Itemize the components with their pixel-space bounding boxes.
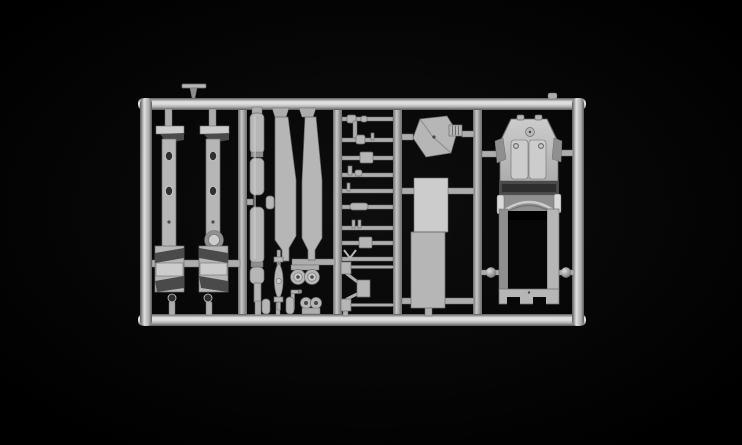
- small-wheel-hub: [314, 301, 318, 305]
- segment-3: [250, 207, 264, 263]
- gate-plate-bottom-left: [402, 298, 412, 304]
- ball-right: [561, 267, 571, 277]
- gate-plate-top-right: [446, 188, 474, 194]
- mudguard-end: [199, 246, 228, 292]
- spring-cap-top: [274, 257, 283, 262]
- cylinder-highlight: [254, 116, 257, 259]
- rivet-hole: [211, 220, 214, 223]
- rail-top: [138, 98, 586, 110]
- mudguard-face: [156, 263, 183, 276]
- gate-bottom-1: [169, 302, 175, 315]
- bottom-rivet: [528, 291, 530, 293]
- floor-plate-lower: [411, 232, 445, 308]
- runner-3: [393, 106, 402, 318]
- wheel-hub: [296, 275, 300, 279]
- lightening-hole: [209, 186, 216, 195]
- rivet-hole: [167, 220, 170, 223]
- side-knob-1: [266, 196, 274, 209]
- runner-1: [238, 106, 247, 318]
- compartment-wall-left: [499, 209, 508, 291]
- gate-hex-left: [402, 134, 413, 140]
- gate-cylinder-tie: [247, 199, 253, 205]
- winglet-right: [552, 138, 562, 162]
- top-knob: [517, 115, 524, 120]
- opening-top-shadow: [508, 211, 547, 220]
- hood-cap-dot: [529, 131, 531, 133]
- joint-2: [251, 262, 263, 267]
- frame-block-right: [357, 280, 370, 297]
- gate-plate-bottom-right: [444, 298, 474, 304]
- mudguard-end: [155, 246, 184, 292]
- floor-plate-upper: [414, 178, 448, 232]
- head-top-face: [200, 126, 229, 134]
- runner-4: [473, 106, 482, 318]
- frame-block-bottom: [341, 299, 351, 311]
- wheel-hub: [310, 275, 314, 279]
- wheel-pair-small: [300, 297, 321, 314]
- segment-1: [250, 113, 264, 154]
- segment-2: [250, 158, 264, 195]
- gate-plate-top-left: [402, 188, 415, 194]
- gate-top-left-1: [165, 109, 172, 127]
- gate-body-upper-left: [482, 151, 497, 157]
- visor-slit: [502, 184, 556, 192]
- photo-stage: Photograph of a light-gray injection-mol…: [0, 0, 742, 445]
- axle-bar: [291, 265, 319, 270]
- cylinder-bottom-gate: [255, 301, 261, 315]
- lever-ball: [298, 290, 302, 294]
- lightening-hole: [165, 151, 172, 160]
- leaf-spring: [274, 250, 283, 310]
- joint-1: [251, 152, 263, 157]
- end-ring: [204, 294, 212, 302]
- gate-blade-left: [272, 108, 289, 117]
- canister: [262, 299, 270, 314]
- hexagon-center-hole: [432, 135, 435, 138]
- bottom-notch: [533, 297, 546, 305]
- runner-2: [333, 106, 342, 318]
- small-wheel-hub: [304, 301, 308, 305]
- gate-top-left-2: [209, 109, 216, 127]
- canister: [286, 297, 294, 314]
- ribbed-block: [449, 125, 462, 136]
- hull-body: [495, 115, 562, 305]
- gate-hex-right: [462, 131, 474, 137]
- rail-left: [140, 98, 152, 326]
- bottom-notch: [507, 297, 520, 305]
- rail-nub: [548, 93, 557, 99]
- ball-left: [486, 267, 496, 277]
- small-wheel-base: [302, 308, 320, 314]
- t-part-bar: [182, 84, 206, 88]
- sprue-photo: Photograph of a light-gray injection-mol…: [0, 0, 742, 445]
- gate-bottom-2: [206, 302, 212, 315]
- segment-4: [250, 267, 264, 284]
- spring-center-band: [276, 278, 281, 283]
- lightening-hole: [165, 186, 172, 195]
- compartment-wall-right: [547, 209, 559, 291]
- vignette: [0, 0, 742, 445]
- rail-bottom: [138, 314, 586, 326]
- frame-block-top: [341, 262, 351, 274]
- mudguard-face: [200, 263, 227, 275]
- lightening-hole: [209, 151, 216, 160]
- compartment-opening: [508, 211, 547, 289]
- rail-right: [572, 98, 584, 326]
- drum-inner: [209, 235, 220, 246]
- head-top-face: [156, 126, 184, 134]
- end-tab: [254, 283, 261, 302]
- floor-plate: [411, 178, 448, 308]
- spring-cap-bottom: [274, 297, 283, 302]
- end-ring: [168, 294, 176, 302]
- gate-blade-right: [299, 108, 316, 117]
- top-knob: [535, 115, 542, 120]
